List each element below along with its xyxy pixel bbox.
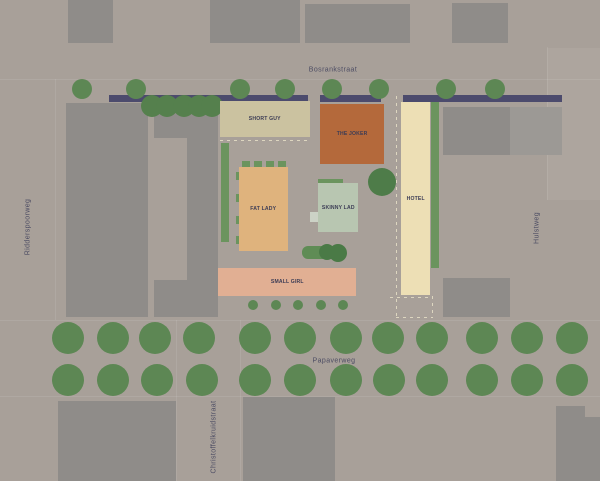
courtyard-small-trees <box>316 300 326 310</box>
background-patch <box>585 406 600 417</box>
curb-line <box>176 320 177 481</box>
bosrankstraat-trees <box>230 79 250 99</box>
site-boundary-dashed-line <box>396 317 433 318</box>
building-small-girl: SMALL GIRL <box>218 268 356 296</box>
context-building <box>556 406 600 481</box>
papaverweg-trees-north <box>330 322 362 354</box>
context-building <box>443 107 510 155</box>
papaverweg-trees-south <box>416 364 448 396</box>
papaverweg-trees-south <box>373 364 405 396</box>
context-building <box>452 3 508 43</box>
building-label-skinny-lad: SKINNY LAD <box>322 205 355 210</box>
papaverweg-trees-north <box>52 322 84 354</box>
papaverweg-trees-north <box>416 322 448 354</box>
papaverweg-trees-north <box>511 322 543 354</box>
curb-line <box>0 79 600 80</box>
papaverweg-trees-south <box>284 364 316 396</box>
building-label-hotel: HOTEL <box>406 196 424 201</box>
bosrankstraat-trees <box>322 79 342 99</box>
context-building <box>210 0 300 43</box>
street-label-hulstweg: Hulstweg <box>534 212 541 244</box>
building-short-guy: SHORT GUY <box>220 101 310 137</box>
planter-tree <box>329 244 347 262</box>
context-building <box>58 401 176 481</box>
site-boundary-dashed-line <box>390 297 432 298</box>
papaverweg-trees-north <box>466 322 498 354</box>
context-building <box>68 0 113 43</box>
papaverweg-trees-south <box>556 364 588 396</box>
papaverweg-trees-south <box>97 364 129 396</box>
bosrankstraat-trees <box>72 79 92 99</box>
hedge-strip <box>221 143 229 242</box>
papaverweg-trees-north <box>284 322 316 354</box>
building-label-short-guy: SHORT GUY <box>249 116 281 121</box>
courtyard-tree <box>368 168 396 196</box>
courtyard-small-trees <box>271 300 281 310</box>
papaverweg-trees-south <box>141 364 173 396</box>
papaverweg-trees-north <box>139 322 171 354</box>
papaverweg-trees-south <box>511 364 543 396</box>
building-skinny-lad: SKINNY LAD <box>318 183 358 232</box>
papaverweg-trees-north <box>183 322 215 354</box>
context-building <box>443 278 510 317</box>
building-fat-lady: FAT LADY <box>239 167 288 251</box>
papaverweg-trees-south <box>52 364 84 396</box>
papaverweg-trees-south <box>466 364 498 396</box>
bosrankstraat-trees <box>369 79 389 99</box>
context-building <box>510 107 562 155</box>
bosrankstraat-trees <box>485 79 505 99</box>
bosrankstraat-trees <box>436 79 456 99</box>
papaverweg-trees-north <box>556 322 588 354</box>
context-building <box>66 103 148 317</box>
building-hotel: HOTEL <box>401 102 430 295</box>
building-label-small-girl: SMALL GIRL <box>271 279 304 284</box>
courtyard-small-trees <box>248 300 258 310</box>
building-label-fat-lady: FAT LADY <box>251 206 277 211</box>
papaverweg-trees-south <box>186 364 218 396</box>
bosrankstraat-trees <box>126 79 146 99</box>
context-building <box>305 4 410 43</box>
papaverweg-trees-south <box>330 364 362 396</box>
street-label-ridderspoorweg: Ridderspoorweg <box>25 199 32 256</box>
bosrankstraat-trees <box>275 79 295 99</box>
papaverweg-trees-north <box>97 322 129 354</box>
courtyard-small-trees <box>293 300 303 310</box>
papaverweg-trees-north <box>372 322 404 354</box>
street-label-papaverweg: Papaverweg <box>313 358 356 365</box>
building-the-joker: THE JOKER <box>320 104 384 164</box>
papaverweg-trees-south <box>239 364 271 396</box>
courtyard-small-trees <box>338 300 348 310</box>
street-front-strip <box>403 95 562 102</box>
street-label-bosrankstraat: Bosrankstraat <box>309 67 357 74</box>
hedge-strip <box>431 102 439 268</box>
background-patch <box>154 138 187 280</box>
site-boundary-dashed-line <box>396 96 397 317</box>
building-label-the-joker: THE JOKER <box>337 131 368 136</box>
site-boundary-dashed-line <box>220 140 310 141</box>
curb-line <box>0 320 600 321</box>
site-boundary-dashed-line <box>432 296 433 317</box>
curb-line <box>55 79 56 320</box>
street-label-christoffelkruidstraat: Christoffelkruidstraat <box>211 401 218 474</box>
papaverweg-trees-north <box>239 322 271 354</box>
context-building <box>243 397 335 481</box>
site-plan-map: SHORT GUY THE JOKER FAT LADY SKINNY LAD … <box>0 0 600 481</box>
